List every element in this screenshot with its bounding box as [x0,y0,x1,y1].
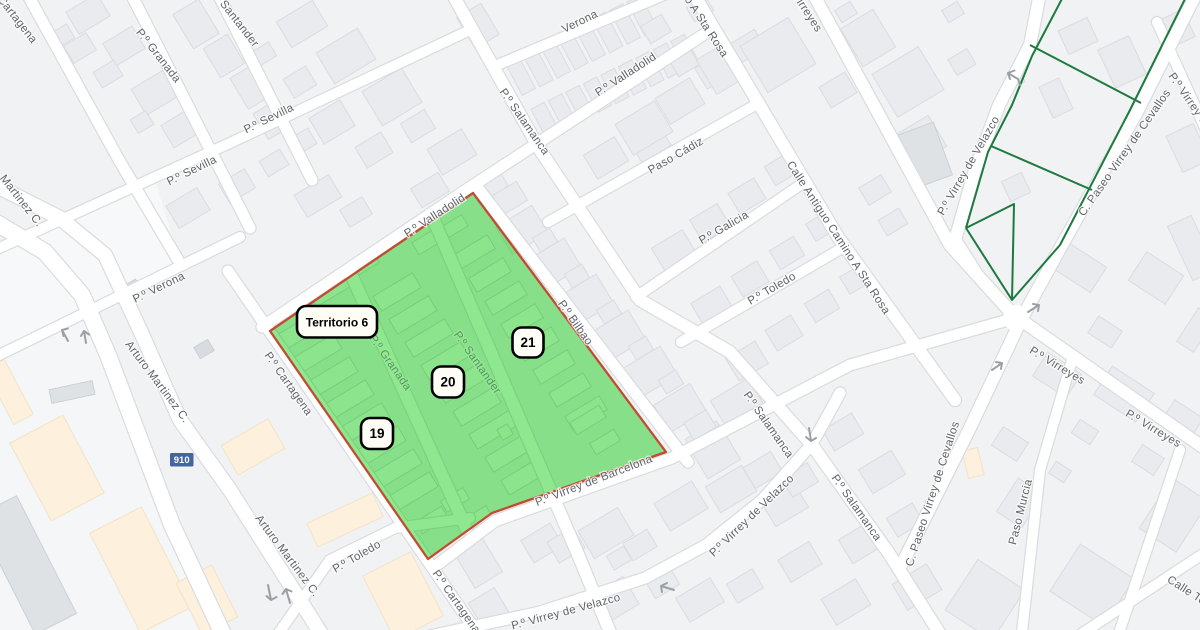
svg-text:910: 910 [174,455,190,466]
svg-text:20: 20 [440,375,455,390]
svg-text:19: 19 [369,426,384,441]
svg-text:21: 21 [520,335,536,350]
svg-text:Territorio 6: Territorio 6 [306,315,369,329]
